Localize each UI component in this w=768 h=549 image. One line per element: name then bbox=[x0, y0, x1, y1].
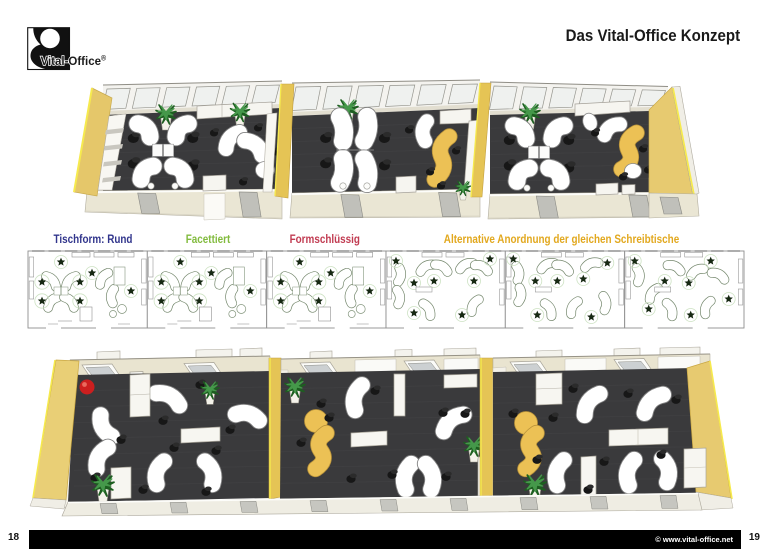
svg-text:Vital-Office®: Vital-Office® bbox=[41, 55, 108, 69]
